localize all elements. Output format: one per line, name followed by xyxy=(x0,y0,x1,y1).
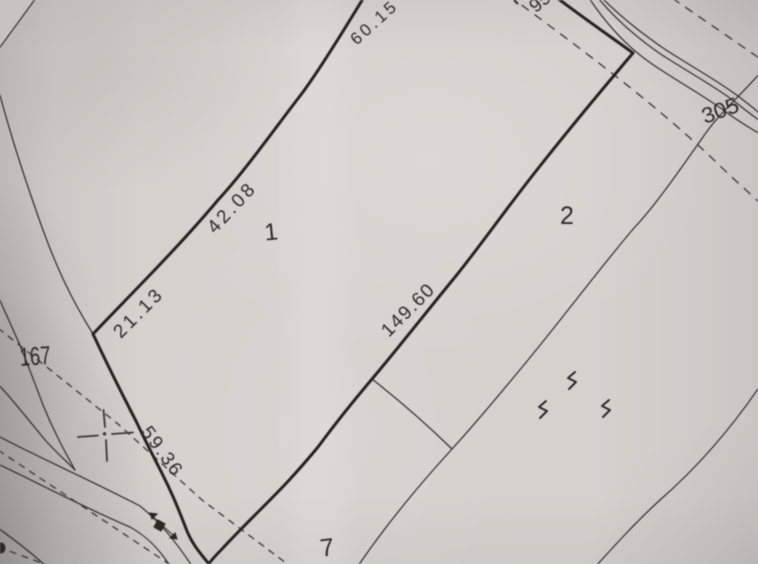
svg-text:7: 7 xyxy=(319,533,336,562)
svg-text:149.60: 149.60 xyxy=(377,279,439,341)
svg-text:95: 95 xyxy=(525,0,555,17)
svg-text:1: 1 xyxy=(263,218,279,246)
svg-text:167: 167 xyxy=(19,340,52,372)
svg-text:60.15: 60.15 xyxy=(347,0,402,49)
svg-text:2: 2 xyxy=(560,202,574,230)
svg-text:21.13: 21.13 xyxy=(110,284,169,343)
